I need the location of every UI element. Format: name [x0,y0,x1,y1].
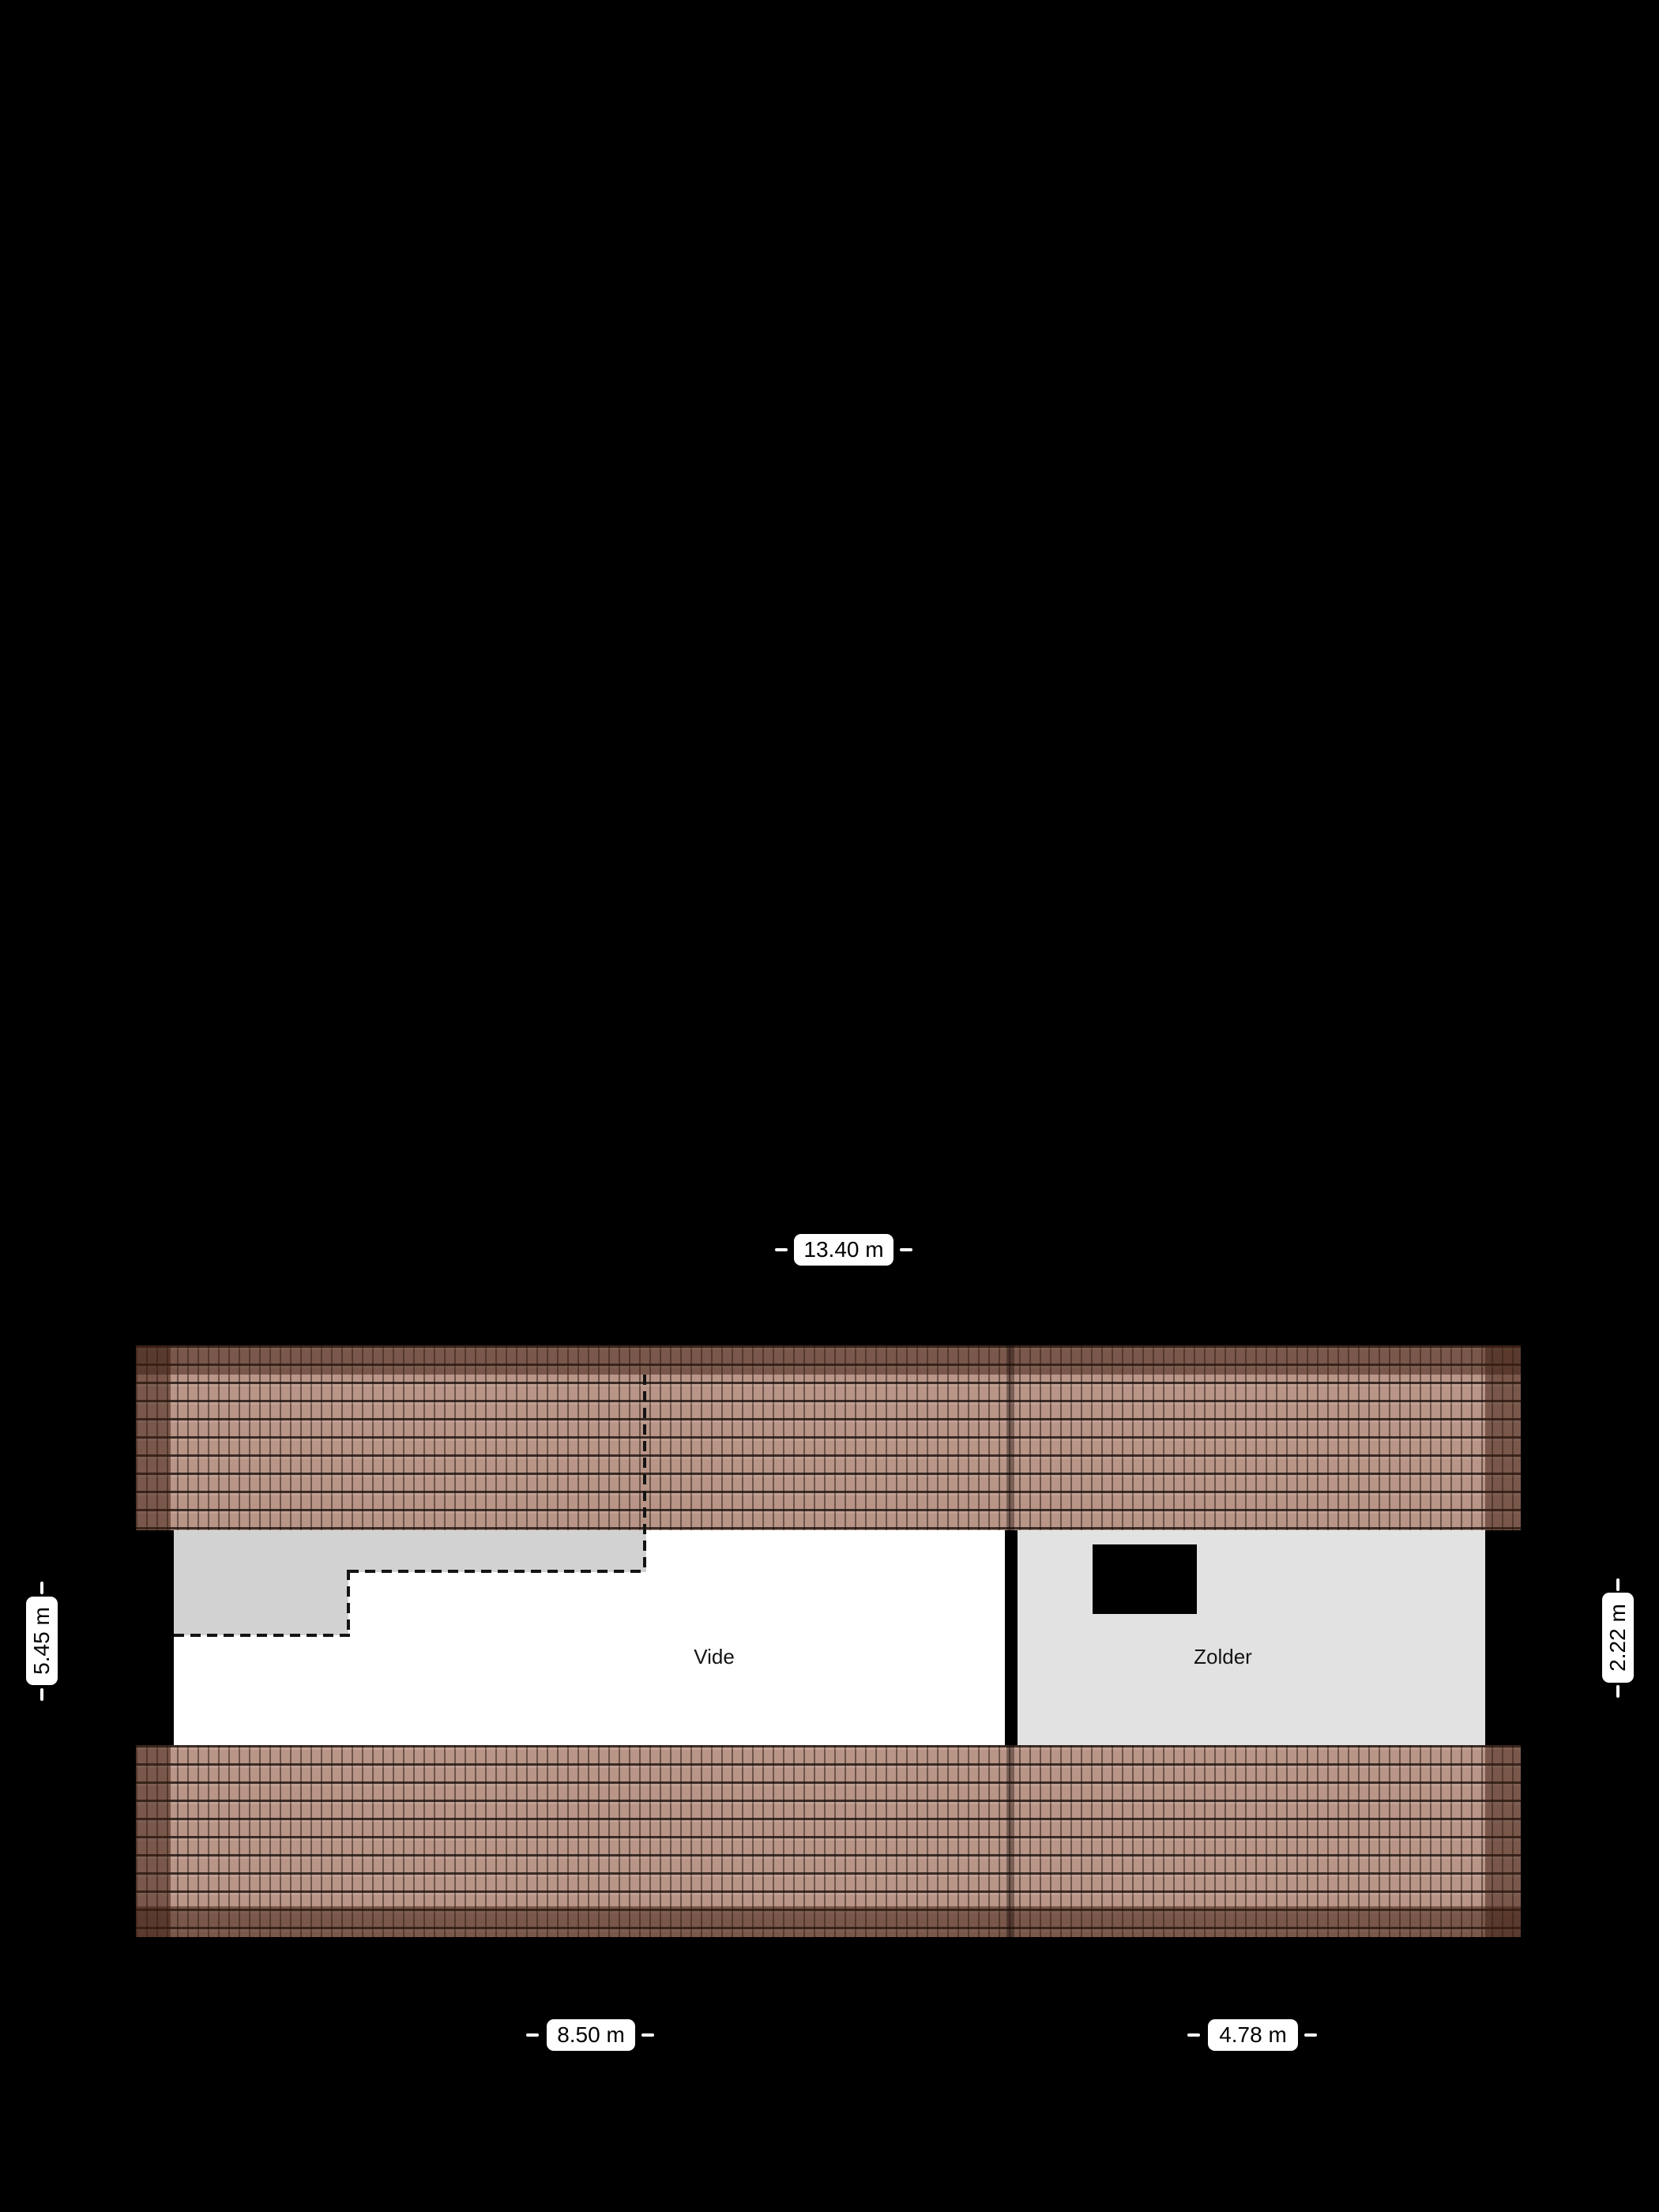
dimension-tick [40,1582,43,1594]
landing-floor-block-left [174,1572,348,1635]
room-label-zolder: Zolder [1194,1645,1252,1668]
landing-floor-strip-top [174,1530,646,1572]
dimension-label-right-depth: 2.22 m [1602,1593,1634,1683]
dimension-tick [1616,1578,1619,1591]
dimension-label-vide-width: 8.50 m [547,2019,635,2051]
roof-eave-edge-bottom [136,1906,1521,1937]
dimension-tick [900,1248,912,1251]
vide-boundary-dashed-vertical-roof [643,1375,646,1572]
dimension-label-zolder-width: 4.78 m [1208,2019,1298,2051]
vide-boundary-dashed-vertical-step [347,1570,350,1637]
roof-ridge-edge-top [136,1345,1521,1375]
dimension-tick [40,1688,43,1701]
roof-verge-edge-bottom-left [136,1745,171,1937]
roof-plane-bottom [136,1745,1521,1937]
dimension-tick [526,2033,539,2037]
party-wall-seam-bottom-roof [1006,1745,1014,1937]
dimension-tick [775,1248,788,1251]
dimension-tick [1187,2033,1200,2037]
party-wall [1005,1530,1018,1745]
roof-verge-edge-bottom-right [1485,1745,1521,1937]
dimension-tick [641,2033,654,2037]
room-label-vide: Vide [694,1645,735,1668]
roof-verge-edge-left [136,1345,171,1530]
roof-verge-edge-right [1485,1345,1521,1530]
roof-plane-top [136,1345,1521,1530]
party-wall-seam-top-roof [1006,1345,1014,1530]
dimension-label-total-width: 13.40 m [794,1234,893,1266]
vide-boundary-dashed-horizontal-upper [348,1570,646,1573]
floorplan-canvas: Vide Zolder 13.40 m 5.45 m 2.22 m 8.50 m… [0,0,1659,2212]
chimney-shaft [1093,1544,1197,1614]
dimension-label-left-depth: 5.45 m [26,1597,58,1685]
vide-boundary-dashed-horizontal-lower [174,1634,350,1637]
dimension-tick [1616,1685,1619,1698]
dimension-tick [1304,2033,1317,2037]
room-zolder [1018,1530,1485,1745]
